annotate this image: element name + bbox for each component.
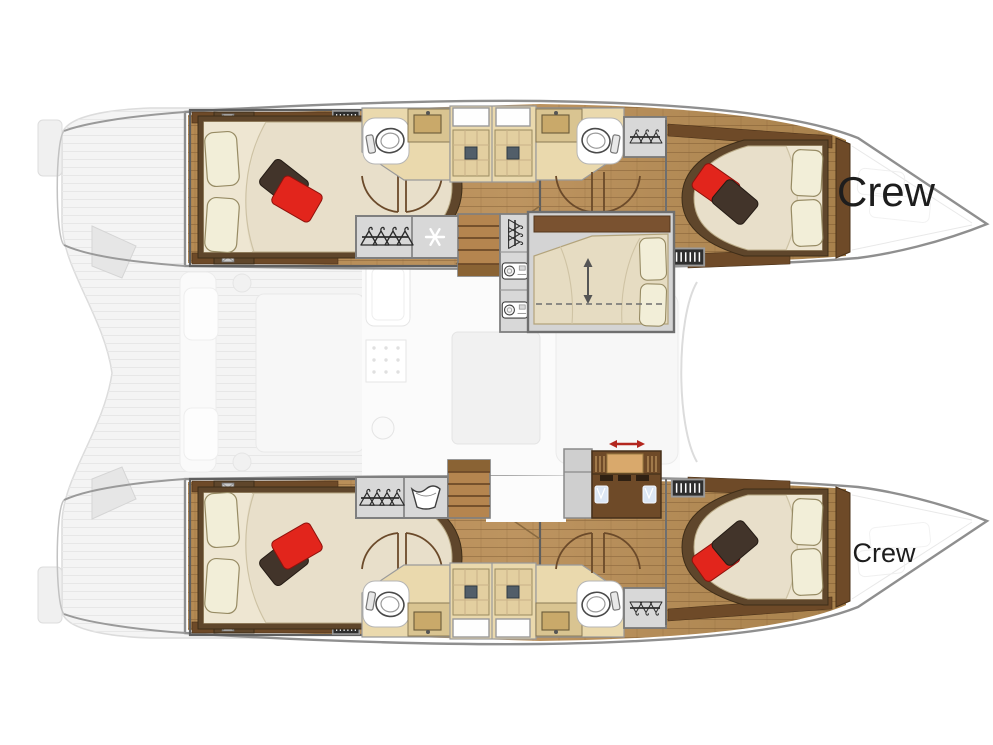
pillow [204,197,240,253]
cockpit-table-ghost [256,294,364,452]
saloon-floor-patch [486,476,566,522]
headboard [534,216,670,232]
hull-window [453,108,489,126]
foredeck-ghost [681,282,697,462]
shower-seat [453,130,489,176]
utility-column [500,214,530,332]
crew-label-bottom: Crew [852,538,916,568]
catamaran-deck-plan: Crew Crew [0,0,993,745]
crew-label-top: Crew [837,168,936,215]
central-cabin [528,212,674,332]
cushion-ghost [184,408,218,460]
desk-cabinet-gray [564,449,592,518]
faucet [426,111,430,115]
nav-desk-unit [564,449,661,518]
saloon-table-ghost [452,332,540,444]
washing-machine-icon [502,302,528,318]
shower-block [450,106,536,182]
fan-ghost [372,417,394,439]
pillow [791,149,823,197]
shower-seat [495,130,532,176]
drawer [618,475,631,481]
drawer [636,475,649,481]
pillow [204,131,240,187]
drawer [600,475,613,481]
vent-grill-icon [672,248,704,265]
washing-machine-icon [502,263,528,279]
deck-fitting-ghost [233,274,251,292]
pillow [639,238,666,281]
sink [414,115,441,133]
deck-fitting-ghost [233,453,251,471]
stairs-to-hull-top [458,214,500,276]
wardrobe-forward [624,117,666,157]
pillow [639,284,666,327]
floor-plan-svg: Crew Crew [0,0,993,745]
faucet [554,111,558,115]
hull-window [496,108,530,126]
stairs-to-hull-bottom [448,460,490,518]
sink [542,115,569,133]
cushion-ghost [184,288,218,340]
pillow [791,199,823,247]
desk-panel [607,454,643,473]
